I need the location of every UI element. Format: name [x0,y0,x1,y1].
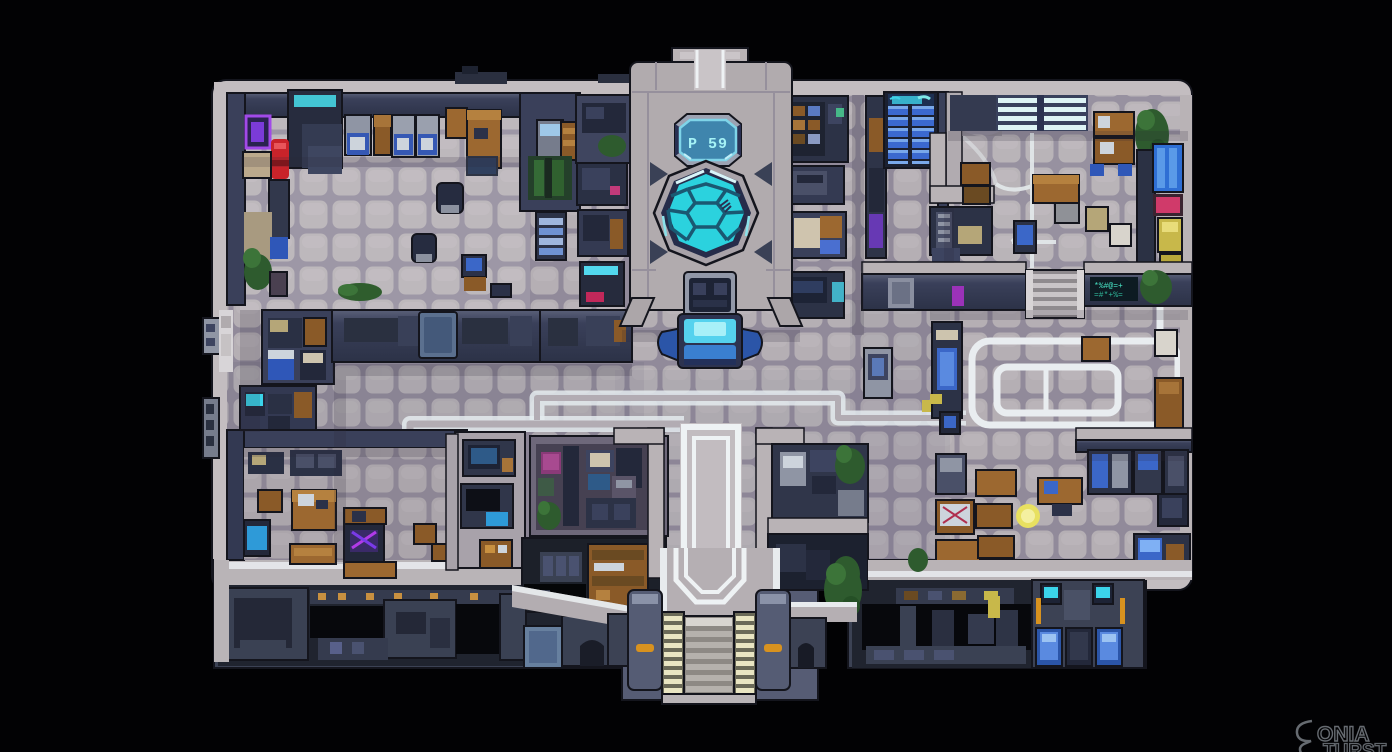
svg-text:P 59: P 59 [688,136,728,153]
svg-text:*%#@=+: *%#@=+ [1094,282,1123,291]
svg-text:TURST: TURST [1323,741,1387,752]
svg-text:=#*+%=: =#*+%= [1094,291,1123,300]
